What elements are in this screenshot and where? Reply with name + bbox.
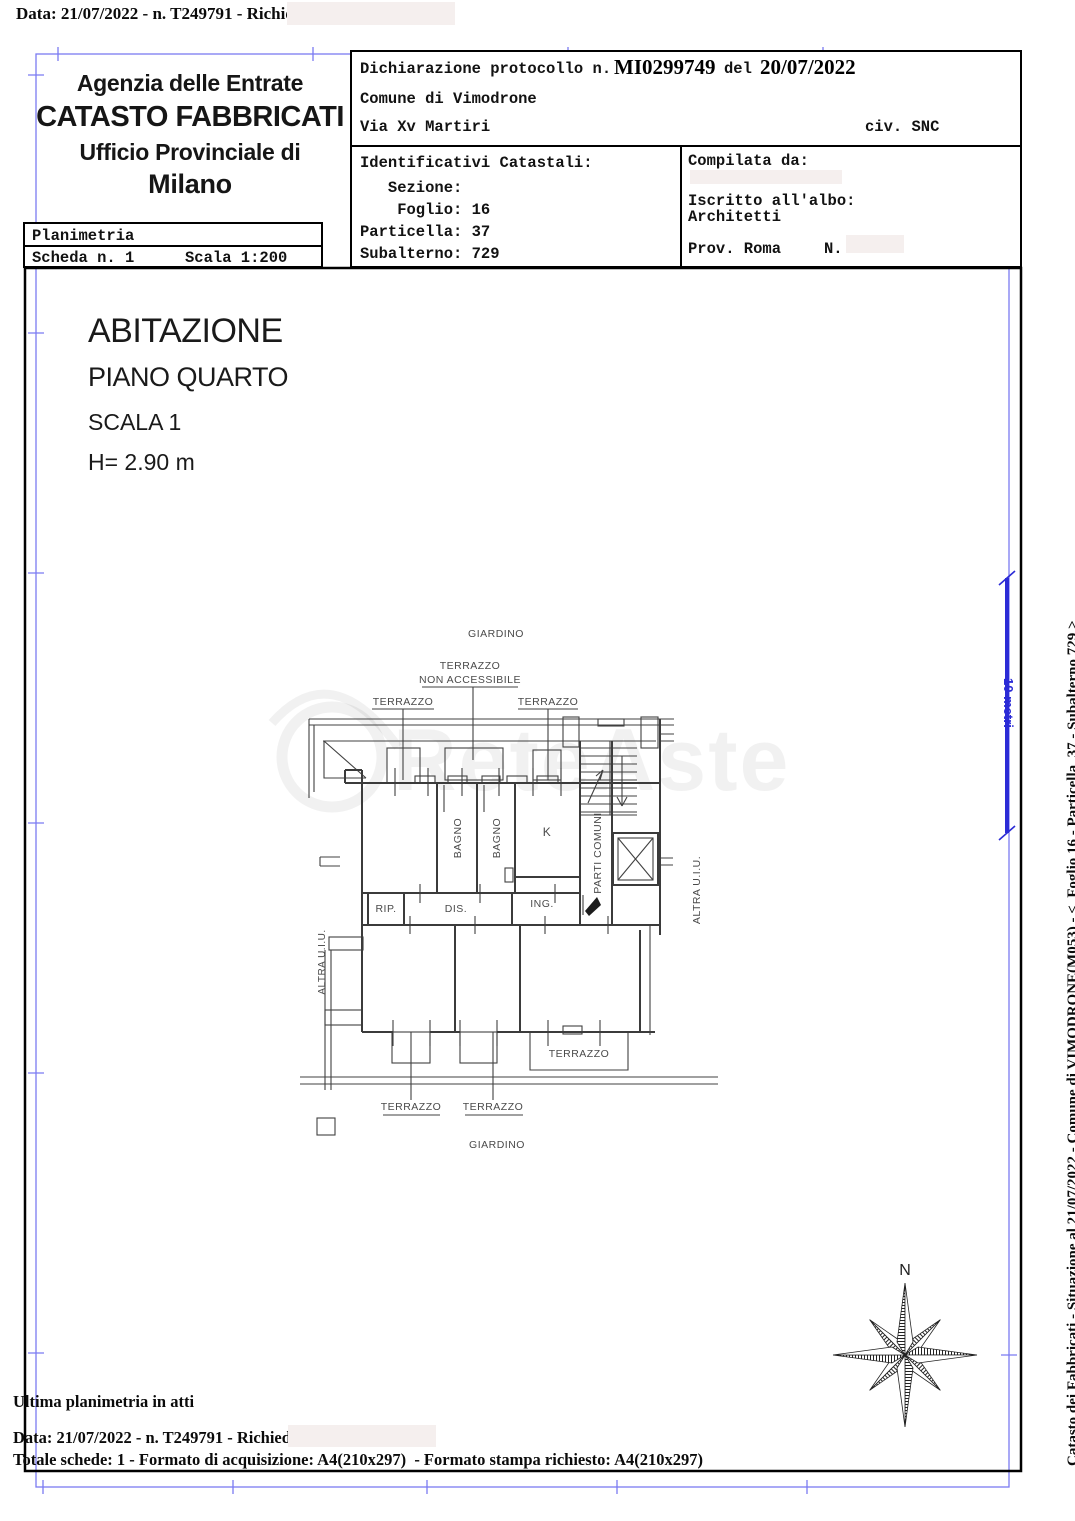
planimetria-label: Planimetria xyxy=(32,227,134,245)
title-altezza: H= 2.90 m xyxy=(88,449,195,476)
protocol-date: 20/07/2022 xyxy=(760,55,856,80)
label-terrazzo-inner: TERRAZZO xyxy=(549,1048,610,1060)
protocol-del-label: del xyxy=(724,60,752,78)
protocol-number: MI0299749 xyxy=(614,55,716,80)
redaction-box-number xyxy=(846,235,904,253)
label-terrazzo-right: TERRAZZO xyxy=(518,696,579,708)
agency-header: Agenzia delle Entrate CATASTO FABBRICATI… xyxy=(25,70,355,200)
agency-line-1: Agenzia delle Entrate xyxy=(25,70,355,97)
label-giardino-bottom: GIARDINO xyxy=(469,1139,525,1151)
title-piano: PIANO QUARTO xyxy=(88,362,288,393)
label-terrazzo-bottom-1: TERRAZZO xyxy=(381,1101,442,1113)
protocol-prefix: Dichiarazione protocollo n. xyxy=(360,60,611,78)
foglio-line: Foglio: 16 xyxy=(360,201,490,219)
compilata-label: Compilata da: xyxy=(688,152,809,170)
floorplan-labels: GIARDINO TERRAZZO NON ACCESSIBILE TERRAZ… xyxy=(317,628,703,1151)
title-scala: SCALA 1 xyxy=(88,409,181,436)
declaration-v-divider xyxy=(680,145,682,268)
label-kitchen: K xyxy=(543,825,552,839)
via-line: Via Xv Martiri xyxy=(360,118,490,136)
label-rip: RIP. xyxy=(375,903,396,915)
label-altra-uiu-left: ALTRA U.I.U. xyxy=(317,929,328,994)
identificativi-title: Identificativi Catastali: xyxy=(360,154,593,172)
redaction-box-requester-top xyxy=(287,2,455,25)
sezione-line: Sezione: xyxy=(360,179,462,197)
footer-line-3: Totale schede: 1 - Formato di acquisizio… xyxy=(13,1450,703,1470)
agency-line-3: Ufficio Provinciale di xyxy=(25,139,355,166)
redaction-box-compiler xyxy=(690,170,842,184)
side-caption: Catasto dei Fabbricati - Situazione al 2… xyxy=(1026,556,1075,1466)
label-terrazzo-left: TERRAZZO xyxy=(373,696,434,708)
declaration-h-divider xyxy=(352,145,1020,147)
label-altra-uiu-right: ALTRA U.I.U. xyxy=(691,856,703,924)
label-terrazzo-na-2: NON ACCESSIBILE xyxy=(419,674,521,686)
compass-rose-icon: N xyxy=(833,1262,977,1427)
label-bagno-1: BAGNO xyxy=(452,818,464,858)
civ-label: civ. SNC xyxy=(865,118,939,136)
albo-line-2: Architetti xyxy=(688,208,781,226)
agency-line-2: CATASTO FABBRICATI xyxy=(25,101,355,134)
compass-north-label: N xyxy=(899,1262,911,1279)
cadastral-document-page: ReteAste xyxy=(0,0,1075,1521)
label-terrazzo-na-1: TERRAZZO xyxy=(440,660,501,672)
scheda-label: Scheda n. 1 xyxy=(32,249,134,267)
watermark-logo: ReteAste xyxy=(272,694,790,809)
side-caption-line-1: Catasto dei Fabbricati - Situazione al 2… xyxy=(1064,556,1075,1466)
n-label: N. xyxy=(824,240,843,258)
entrance-door-icon xyxy=(585,897,601,916)
scala-label: Scala 1:200 xyxy=(185,249,287,267)
subalterno-line: Subalterno: 729 xyxy=(360,245,500,263)
agency-line-4: Milano xyxy=(25,169,355,200)
label-dis: DIS. xyxy=(445,903,467,915)
label-terrazzo-bottom-2: TERRAZZO xyxy=(463,1101,524,1113)
label-parti-comuni: PARTI COMUNI xyxy=(592,812,604,893)
scheda-row: Scheda n. 1 Scala 1:200 xyxy=(25,247,321,268)
label-ing: ING. xyxy=(530,898,554,910)
prov-label: Prov. Roma xyxy=(688,240,781,258)
comune-line: Comune di Vimodrone xyxy=(360,90,537,108)
scale-bar: 10 metri xyxy=(999,571,1016,840)
planimetria-row: Planimetria xyxy=(25,224,321,247)
label-bagno-2: BAGNO xyxy=(491,818,503,858)
label-giardino-top: GIARDINO xyxy=(468,628,524,640)
declaration-box: Dichiarazione protocollo n. MI0299749 de… xyxy=(350,50,1022,268)
scale-bar-label: 10 metri xyxy=(1001,678,1016,728)
footer-line-1: Ultima planimetria in atti xyxy=(13,1392,194,1412)
redaction-box-requester-bottom xyxy=(288,1425,436,1447)
footer-line-2: Data: 21/07/2022 - n. T249791 - Richiede… xyxy=(13,1428,326,1448)
particella-line: Particella: 37 xyxy=(360,223,490,241)
title-abitazione: ABITAZIONE xyxy=(88,312,283,351)
planimetria-table: Planimetria Scheda n. 1 Scala 1:200 xyxy=(23,222,323,268)
